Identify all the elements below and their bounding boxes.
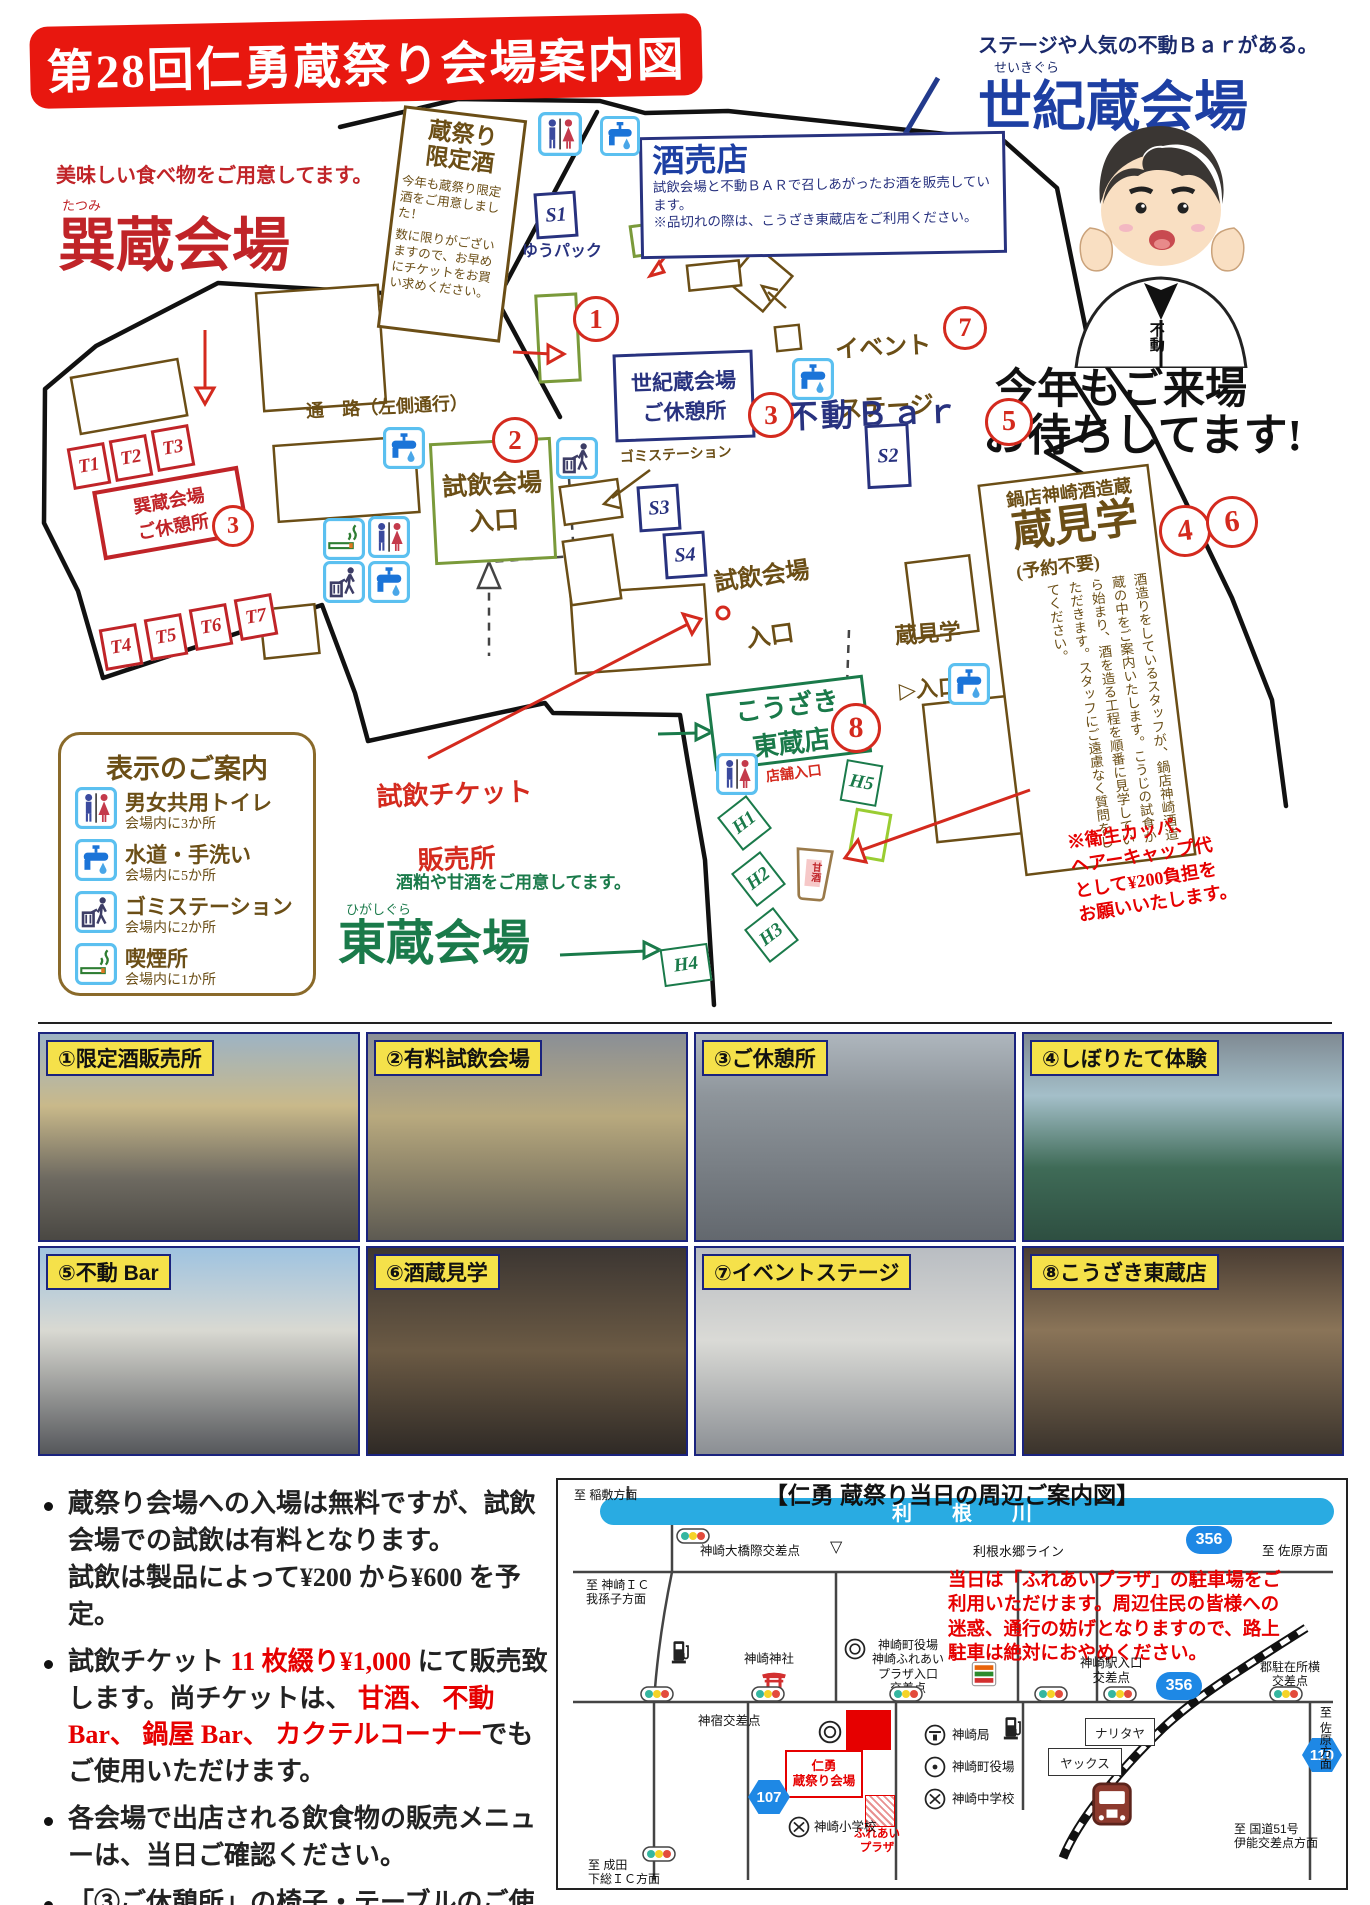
stall-s2-label: S2 xyxy=(877,444,899,468)
num-7: 7 xyxy=(943,306,987,350)
stall-t3-label: T3 xyxy=(161,435,186,460)
stall-s2: S2 xyxy=(864,423,911,489)
section-divider xyxy=(38,1022,1332,1024)
roadmap-to-sawara-right: 至 佐原方面 xyxy=(1318,1706,1332,1802)
train-station-icon xyxy=(1090,1780,1134,1828)
faucet-icon xyxy=(948,663,990,705)
toilet-icon xyxy=(538,112,582,156)
stall-s4: S4 xyxy=(662,531,707,580)
note-item-1: 蔵祭り会場への入場は無料ですが、試飲会場での試飲は有料となります。 試飲は製品に… xyxy=(38,1486,554,1634)
amazake-cup-label: 甘酒 xyxy=(806,862,823,883)
note-4-text: 「③ご休憩所」の椅子・テーブルのご使用は自由ですが、 長時間のご利用は遠慮いただ… xyxy=(68,1888,542,1905)
num-8: 8 xyxy=(831,703,881,753)
note-2-pre: 試飲チケット xyxy=(68,1647,231,1676)
roadmap-ohashi: 神崎大橋際交差点 xyxy=(700,1544,800,1559)
photo-event-stage: ⑦イベントステージ xyxy=(694,1246,1016,1456)
sake-shop-box: 酒売店 試飲会場と不動ＢＡＲで召しあがったお酒を販売しています。 ※品切れの際は… xyxy=(639,131,1007,259)
seikigura-rest-box: 世紀蔵会場 ご休憩所 xyxy=(613,350,756,443)
photo-caption-4: ④しぼりたて体験 xyxy=(1030,1040,1219,1076)
note-2-red1: 11 枚綴り¥1,000 xyxy=(231,1647,412,1676)
photo-fudo-bar: ⑤不動 Bar xyxy=(38,1246,360,1456)
naritaya-box: ナリタヤ xyxy=(1085,1718,1155,1746)
stall-t5-label: T5 xyxy=(154,624,179,649)
traffic-signal-icon xyxy=(889,1686,923,1702)
toilet-icon xyxy=(368,516,410,558)
roadmap-gun-cross: 郡駐在所横 交差点 xyxy=(1260,1660,1320,1689)
roadmap-chugakko: 神崎中学校 xyxy=(952,1792,1015,1807)
photo-caption-8: ⑧こうざき東蔵店 xyxy=(1030,1254,1219,1290)
traffic-signal-icon xyxy=(640,1686,674,1702)
legend-count-water: 会場内に5か所 xyxy=(125,865,216,885)
tatsumi-title: 巽蔵会場 xyxy=(58,210,290,283)
faucet-icon xyxy=(792,358,834,400)
num-5: 5 xyxy=(985,398,1033,446)
gas-station-icon xyxy=(670,1638,692,1666)
photo-rest-area: ③ご休憩所 xyxy=(694,1032,1016,1242)
ticket-booth-line2: 販売所 xyxy=(417,843,496,875)
traffic-signal-icon xyxy=(1034,1686,1068,1702)
yupack-label: ゆうパック xyxy=(522,242,602,262)
smoking-icon xyxy=(75,943,117,985)
roadmap-jinja: 神崎神社 xyxy=(744,1652,794,1667)
tasting-entrance-line1: 試飲会場 xyxy=(441,462,543,503)
stall-t2: T2 xyxy=(109,434,154,482)
stall-t3: T3 xyxy=(151,424,196,472)
stall-t2-label: T2 xyxy=(119,445,144,470)
school-icon xyxy=(788,1816,810,1838)
limited-body-1: 今年も蔵祭り限定酒をご用意しました！ xyxy=(397,173,512,235)
kura-entrance-line1: 蔵見学 xyxy=(894,618,962,648)
photo-caption-1: ①限定酒販売所 xyxy=(46,1040,214,1076)
stall-t1-label: T1 xyxy=(77,453,102,478)
note-3-text: 各会場で出店される飲食物の販売メニューは、当日ご確認ください。 xyxy=(68,1804,536,1870)
town-office-icon xyxy=(924,1756,946,1778)
route-356-shield: 356 xyxy=(1186,1526,1232,1554)
limited-body-2: 数に限りがございますので、お早めにチケットをお買い求めください。 xyxy=(388,226,505,304)
photo-kozaki-store: ⑧こうざき東蔵店 xyxy=(1022,1246,1344,1456)
page-title-text: 第28回仁勇蔵祭り会場案内図 xyxy=(46,20,686,102)
photo-caption-6: ⑥酒蔵見学 xyxy=(374,1254,500,1290)
traffic-signal-icon xyxy=(751,1686,785,1702)
higashigura-title: 東蔵会場 xyxy=(338,914,530,974)
roadmap-shogakko: 神崎小学校 xyxy=(814,1820,877,1835)
roadmap-yakuba: 神崎町役場 xyxy=(952,1760,1015,1775)
tasting-entrance-box: 試飲会場 入口 xyxy=(429,437,557,565)
stall-h4: H4 xyxy=(660,943,713,987)
venue-label-box: 仁勇 蔵祭り会場 xyxy=(785,1750,863,1798)
roadmap-to-narita: 至 成田 下総ＩＣ方面 xyxy=(588,1858,660,1887)
stall-h1-label: H1 xyxy=(728,807,761,839)
traffic-signal-icon xyxy=(1269,1686,1303,1702)
amazake-cup-icon: 甘酒 xyxy=(788,844,839,906)
stall-h5-label: H5 xyxy=(848,770,876,796)
legend-count-smoking: 会場内に1か所 xyxy=(125,969,216,989)
photo-caption-3: ③ご休憩所 xyxy=(702,1040,828,1076)
num-3-tatsumi: 3 xyxy=(212,505,254,547)
roadmap-kamijuku: 神宿交差点 xyxy=(698,1714,761,1729)
post-office-icon xyxy=(924,1724,946,1746)
faucet-icon xyxy=(75,839,117,881)
stall-h2-label: H2 xyxy=(742,863,775,895)
traffic-signal-icon xyxy=(676,1528,710,1544)
stall-t5: T5 xyxy=(144,613,189,661)
ticket-booth-label: 試飲チケット 販売所 xyxy=(358,743,552,880)
photo-caption-2: ②有料試飲会場 xyxy=(374,1040,542,1076)
naritaya-label: ナリタヤ xyxy=(1095,1723,1145,1742)
stall-t7: T7 xyxy=(234,593,279,641)
parking-notice: 当日は「ふれあいプラザ」の駐車場をご 利用いただけます。周辺住民の皆様への 迷惑… xyxy=(948,1568,1281,1666)
tasting-entrance2-label: 試飲会場 入口 xyxy=(708,526,820,658)
roadmap-to-sawara-top: 至 佐原方面 xyxy=(1262,1544,1328,1559)
stall-h5: H5 xyxy=(840,759,884,807)
roadmap-title: 【仁勇 蔵祭り当日の周辺ご案内図】 xyxy=(558,1482,1346,1510)
tasting-entrance2-line2: 入口 xyxy=(745,620,796,652)
sake-shop-title: 酒売店 xyxy=(652,142,749,179)
yakuba-icon xyxy=(818,1720,842,1744)
stall-t1: T1 xyxy=(67,442,112,490)
legend-title: 表示のご案内 xyxy=(61,747,313,786)
kozaki-store-line2: 東蔵店 xyxy=(750,718,832,764)
stall-t4: T4 xyxy=(99,623,144,671)
roadmap-station-cross: 神崎駅入口 交差点 xyxy=(1080,1656,1143,1686)
yax-label: ヤックス xyxy=(1060,1753,1110,1772)
gas-station-icon xyxy=(1002,1714,1024,1742)
yakuba-icon xyxy=(844,1638,866,1660)
smoking-icon xyxy=(323,518,365,560)
num-1: 1 xyxy=(573,296,619,342)
roadmap-to-inashiki: 至 稲敷方面 xyxy=(574,1488,637,1502)
stall-h4-label: H4 xyxy=(672,952,699,977)
photo-kura-tour: ⑥酒蔵見学 xyxy=(366,1246,688,1456)
photo-shiboritate: ④しぼりたて体験 xyxy=(1022,1032,1344,1242)
seikigura-rest-line1: 世紀蔵会場 xyxy=(630,364,736,398)
trash-icon xyxy=(75,891,117,933)
seikigura-rest-line2: ご休憩所 xyxy=(642,395,727,428)
roadmap-to-route51: 至 国道51号 伊能交差点方面 xyxy=(1234,1822,1318,1851)
photo-caption-7: ⑦イベントステージ xyxy=(702,1254,911,1290)
stall-t6-label: T6 xyxy=(199,614,224,639)
roadmap-suigo: 利根水郷ライン xyxy=(973,1544,1064,1560)
amazake-note: 酒粕や甘酒をご用意してます。 xyxy=(396,872,631,893)
bridge-triangle: ▽ xyxy=(830,1538,842,1557)
roadmap-post: 神崎局 xyxy=(952,1728,990,1743)
tatsumi-note: 美味しい食べ物をご用意してます。 xyxy=(56,164,372,189)
note-item-2: 試飲チケット 11 枚綴り¥1,000 にて販売致します。尚チケットは、 甘酒、… xyxy=(38,1644,554,1792)
flyer: 第28回仁勇蔵祭り会場案内図 ステージや人気の不動Ｂａｒがある。 せいきぐら 世… xyxy=(0,0,1370,1905)
seikigura-note: ステージや人気の不動Ｂａｒがある。 xyxy=(978,34,1318,59)
stall-t4-label: T4 xyxy=(109,634,134,659)
photo-limited-sake: ①限定酒販売所 xyxy=(38,1032,360,1242)
stall-s1-label: S1 xyxy=(545,203,568,227)
venue-label: 仁勇 蔵祭り会場 xyxy=(793,1759,856,1789)
area-roadmap: 【仁勇 蔵祭り当日の周辺ご案内図】 至 稲敷方面 利 根 川 神崎大橋際交差点 … xyxy=(556,1478,1348,1890)
stall-s3: S3 xyxy=(636,484,681,533)
note-item-3: 各会場で出店される飲食物の販売メニューは、当日ご確認ください。 xyxy=(38,1801,554,1875)
note-1-text: 蔵祭り会場への入場は無料ですが、試飲会場での試飲は有料となります。 試飲は製品に… xyxy=(68,1489,535,1629)
stall-s4-label: S4 xyxy=(674,543,697,567)
tasting-entrance2-line1: 試飲会場 xyxy=(713,558,812,597)
mascot-chest-text: 不動 xyxy=(1146,322,1165,352)
ticket-booth-line1: 試飲チケット xyxy=(376,777,533,811)
legend-box: 表示のご案内 男女共用トイレ 会場内に3か所 水道・手洗い 会場内に5か所 ゴミ… xyxy=(58,732,316,996)
yax-box: ヤックス xyxy=(1048,1748,1122,1776)
venue-marker xyxy=(846,1710,891,1750)
stall-s3-label: S3 xyxy=(648,496,671,520)
faucet-icon xyxy=(383,427,425,469)
trash-icon xyxy=(323,561,365,603)
stall-t6: T6 xyxy=(189,603,234,651)
photo-tasting-hall: ②有料試飲会場 xyxy=(366,1032,688,1242)
faucet-icon xyxy=(368,561,410,603)
toilet-icon xyxy=(75,787,117,829)
school-icon xyxy=(924,1788,946,1810)
legend-count-trash: 会場内に2か所 xyxy=(125,917,216,937)
legend-count-toilet: 会場内に3か所 xyxy=(125,813,216,833)
toilet-icon xyxy=(716,753,758,795)
faucet-icon xyxy=(600,116,640,156)
photo-caption-5: ⑤不動 Bar xyxy=(46,1254,171,1290)
num-2: 2 xyxy=(492,417,538,463)
sake-shop-body1: 試飲会場と不動ＢＡＲで召しあがったお酒を販売しています。 xyxy=(653,173,994,214)
notes-list: 蔵祭り会場への入場は無料ですが、試飲会場での試飲は有料となります。 試飲は製品に… xyxy=(38,1486,554,1905)
route-356-shield-2: 356 xyxy=(1156,1672,1202,1700)
traffic-signal-icon xyxy=(1103,1686,1137,1702)
tasting-entrance-line2: 入口 xyxy=(468,500,520,539)
page-title: 第28回仁勇蔵祭り会場案内図 xyxy=(29,13,703,109)
stall-h3-label: H3 xyxy=(755,919,788,951)
note-item-4: 「③ご休憩所」の椅子・テーブルのご使用は自由ですが、 長時間のご利用は遠慮いただ… xyxy=(38,1885,554,1905)
trash-icon xyxy=(556,437,598,479)
stall-s1: S1 xyxy=(533,191,578,240)
num-3-seikigura: 3 xyxy=(748,392,794,438)
event-stage-line1: イベント xyxy=(835,333,932,364)
roadmap-to-kozaki-ic: 至 神崎ＩＣ 我孫子方面 xyxy=(586,1578,649,1607)
seven-eleven-icon xyxy=(970,1660,998,1688)
stall-t7-label: T7 xyxy=(244,604,269,629)
